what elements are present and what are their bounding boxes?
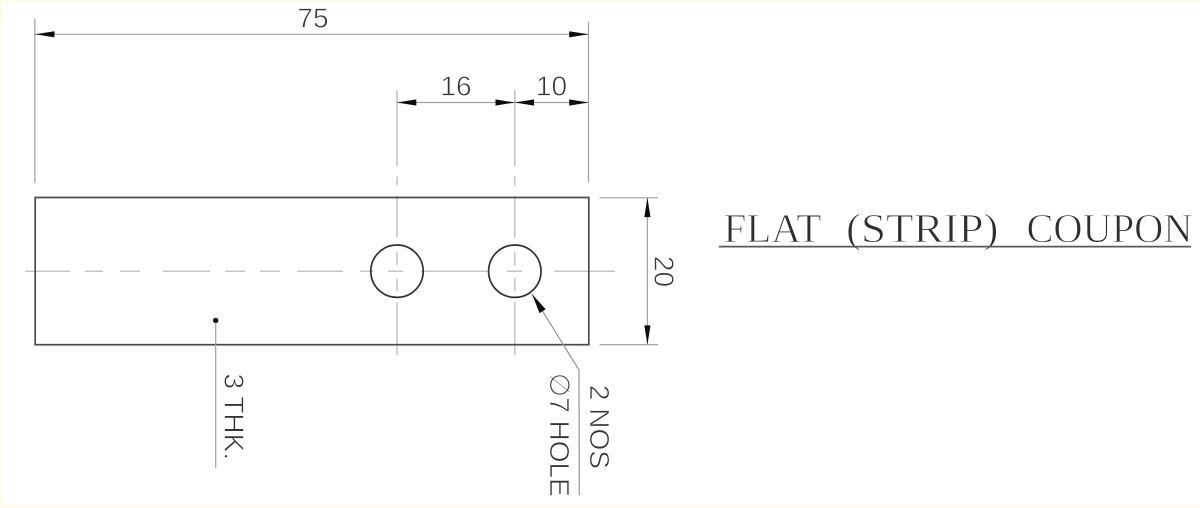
- svg-text:FLAT: FLAT: [724, 205, 822, 251]
- svg-text:10: 10: [536, 70, 567, 101]
- svg-text:16: 16: [440, 70, 471, 101]
- svg-text:∅7 HOLE: ∅7 HOLE: [544, 373, 575, 497]
- svg-text:75: 75: [297, 2, 328, 33]
- svg-text:3 THK.: 3 THK.: [219, 373, 250, 460]
- svg-text:2 NOS: 2 NOS: [584, 385, 615, 469]
- svg-text:(STRIP): (STRIP): [846, 205, 999, 251]
- svg-text:20: 20: [649, 256, 680, 287]
- svg-text:COUPON: COUPON: [1027, 205, 1193, 251]
